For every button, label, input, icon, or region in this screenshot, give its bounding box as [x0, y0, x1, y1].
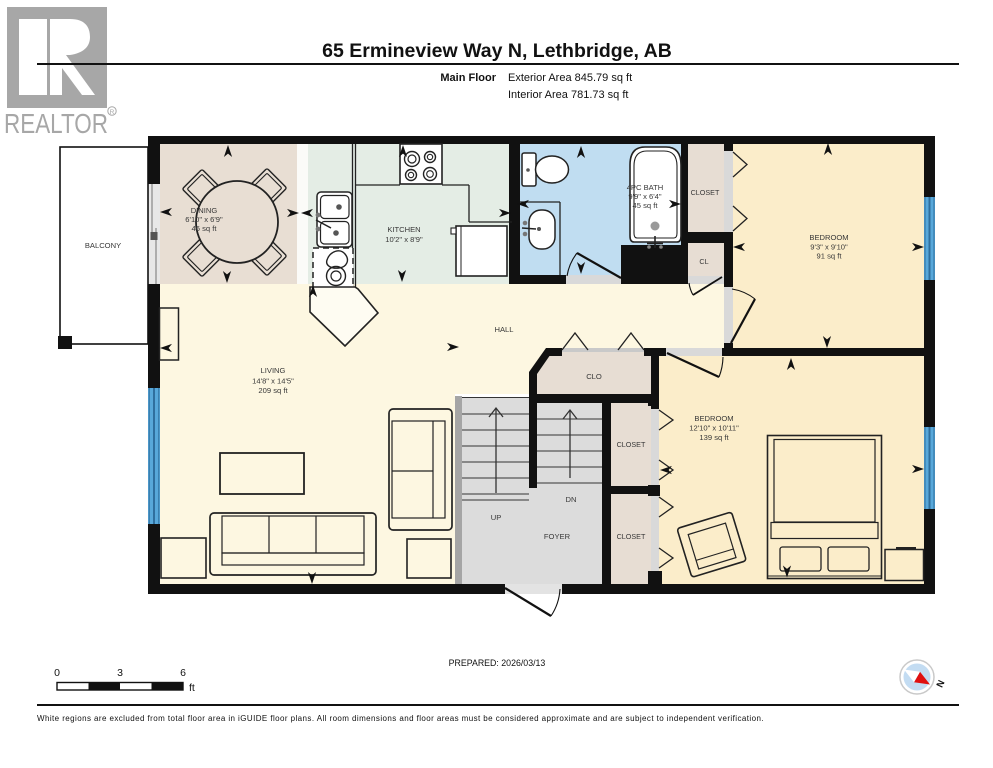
svg-text:Exterior Area 845.79 sq ft: Exterior Area 845.79 sq ft [508, 72, 632, 84]
svg-text:White regions are excluded fro: White regions are excluded from total fl… [37, 714, 764, 723]
svg-text:0: 0 [54, 667, 60, 679]
svg-text:9'9" x 6'4": 9'9" x 6'4" [628, 192, 662, 201]
svg-text:12'10" x 10'11": 12'10" x 10'11" [689, 424, 739, 433]
svg-text:BALCONY: BALCONY [85, 241, 121, 250]
svg-text:CLOSET: CLOSET [691, 188, 720, 197]
svg-text:LIVING: LIVING [261, 366, 286, 375]
svg-text:R: R [110, 109, 115, 116]
svg-text:UP: UP [491, 513, 502, 522]
svg-text:6'10" x 6'9": 6'10" x 6'9" [185, 215, 223, 224]
svg-text:Interior Area 781.73 sq ft: Interior Area 781.73 sq ft [508, 89, 628, 101]
svg-text:6: 6 [180, 667, 186, 679]
svg-text:46 sq ft: 46 sq ft [192, 224, 218, 233]
svg-text:Main Floor: Main Floor [440, 72, 496, 84]
svg-text:CLO: CLO [586, 372, 602, 381]
svg-text:DN: DN [566, 495, 577, 504]
svg-text:REALTOR: REALTOR [4, 108, 108, 139]
svg-text:ft: ft [189, 682, 195, 694]
svg-text:BEDROOM: BEDROOM [694, 414, 733, 423]
svg-text:KITCHEN: KITCHEN [387, 225, 420, 234]
svg-text:PREPARED: 2026/03/13: PREPARED: 2026/03/13 [449, 658, 546, 668]
svg-text:HALL: HALL [495, 325, 514, 334]
svg-text:9'3" x 9'10": 9'3" x 9'10" [810, 243, 848, 252]
svg-text:CLOSET: CLOSET [617, 440, 646, 449]
svg-text:BEDROOM: BEDROOM [809, 233, 848, 242]
svg-text:91 sq ft: 91 sq ft [817, 252, 843, 261]
svg-text:209 sq ft: 209 sq ft [258, 386, 288, 395]
svg-text:FOYER: FOYER [544, 532, 571, 541]
svg-text:45 sq ft: 45 sq ft [633, 201, 659, 210]
svg-text:4PC BATH: 4PC BATH [627, 183, 664, 192]
svg-text:10'2" x 8'9": 10'2" x 8'9" [385, 235, 423, 244]
svg-text:DINING: DINING [191, 206, 218, 215]
svg-text:139 sq ft: 139 sq ft [699, 433, 729, 442]
svg-text:3: 3 [117, 667, 123, 679]
svg-text:CL: CL [699, 257, 708, 266]
svg-text:CLOSET: CLOSET [617, 532, 646, 541]
svg-text:65 Ermineview Way N, Lethbridg: 65 Ermineview Way N, Lethbridge, AB [322, 40, 672, 62]
svg-text:14'8" x 14'5": 14'8" x 14'5" [252, 377, 294, 386]
